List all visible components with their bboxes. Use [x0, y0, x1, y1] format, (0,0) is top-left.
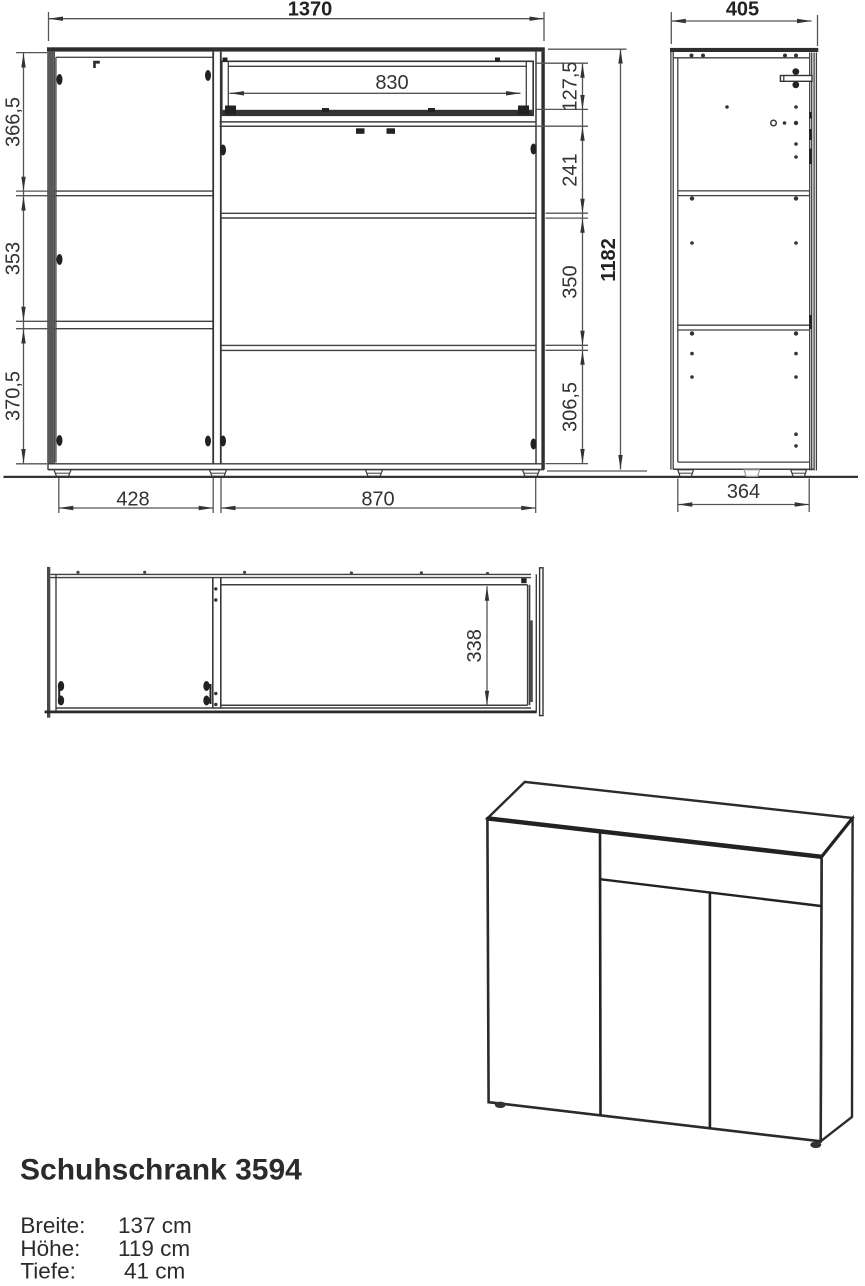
svg-text:1182: 1182 [598, 238, 620, 281]
svg-text:41 cm: 41 cm [124, 1258, 185, 1283]
svg-text:350: 350 [560, 265, 582, 298]
svg-text:338: 338 [464, 629, 486, 662]
svg-text:353: 353 [3, 242, 25, 275]
svg-text:Breite:: Breite: [20, 1213, 85, 1238]
svg-text:137 cm: 137 cm [118, 1213, 192, 1238]
svg-text:370,5: 370,5 [3, 371, 25, 421]
svg-text:Schuhschrank 3594: Schuhschrank 3594 [20, 1153, 302, 1186]
svg-text:870: 870 [361, 489, 394, 511]
svg-text:364: 364 [727, 481, 760, 503]
svg-text:405: 405 [726, 0, 759, 21]
svg-text:241: 241 [560, 153, 582, 186]
svg-text:428: 428 [116, 489, 149, 511]
svg-text:Tiefe:: Tiefe: [20, 1258, 75, 1283]
svg-text:127,5: 127,5 [560, 61, 582, 111]
svg-text:830: 830 [375, 72, 408, 94]
svg-text:Höhe:: Höhe: [20, 1236, 80, 1261]
svg-text:119 cm: 119 cm [118, 1236, 190, 1261]
svg-text:1370: 1370 [288, 0, 333, 21]
svg-text:306,5: 306,5 [560, 382, 582, 432]
svg-text:366,5: 366,5 [3, 97, 25, 147]
